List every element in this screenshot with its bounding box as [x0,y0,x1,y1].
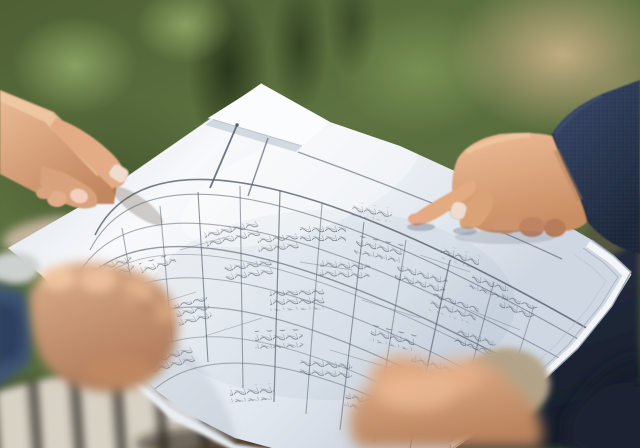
left-sleeve [0,282,33,390]
photo-scene [0,0,640,448]
left-fist [30,262,178,392]
fist-knuckle [41,266,75,290]
fingertip-contact-shadow [407,223,435,231]
scene-artwork [0,0,640,448]
